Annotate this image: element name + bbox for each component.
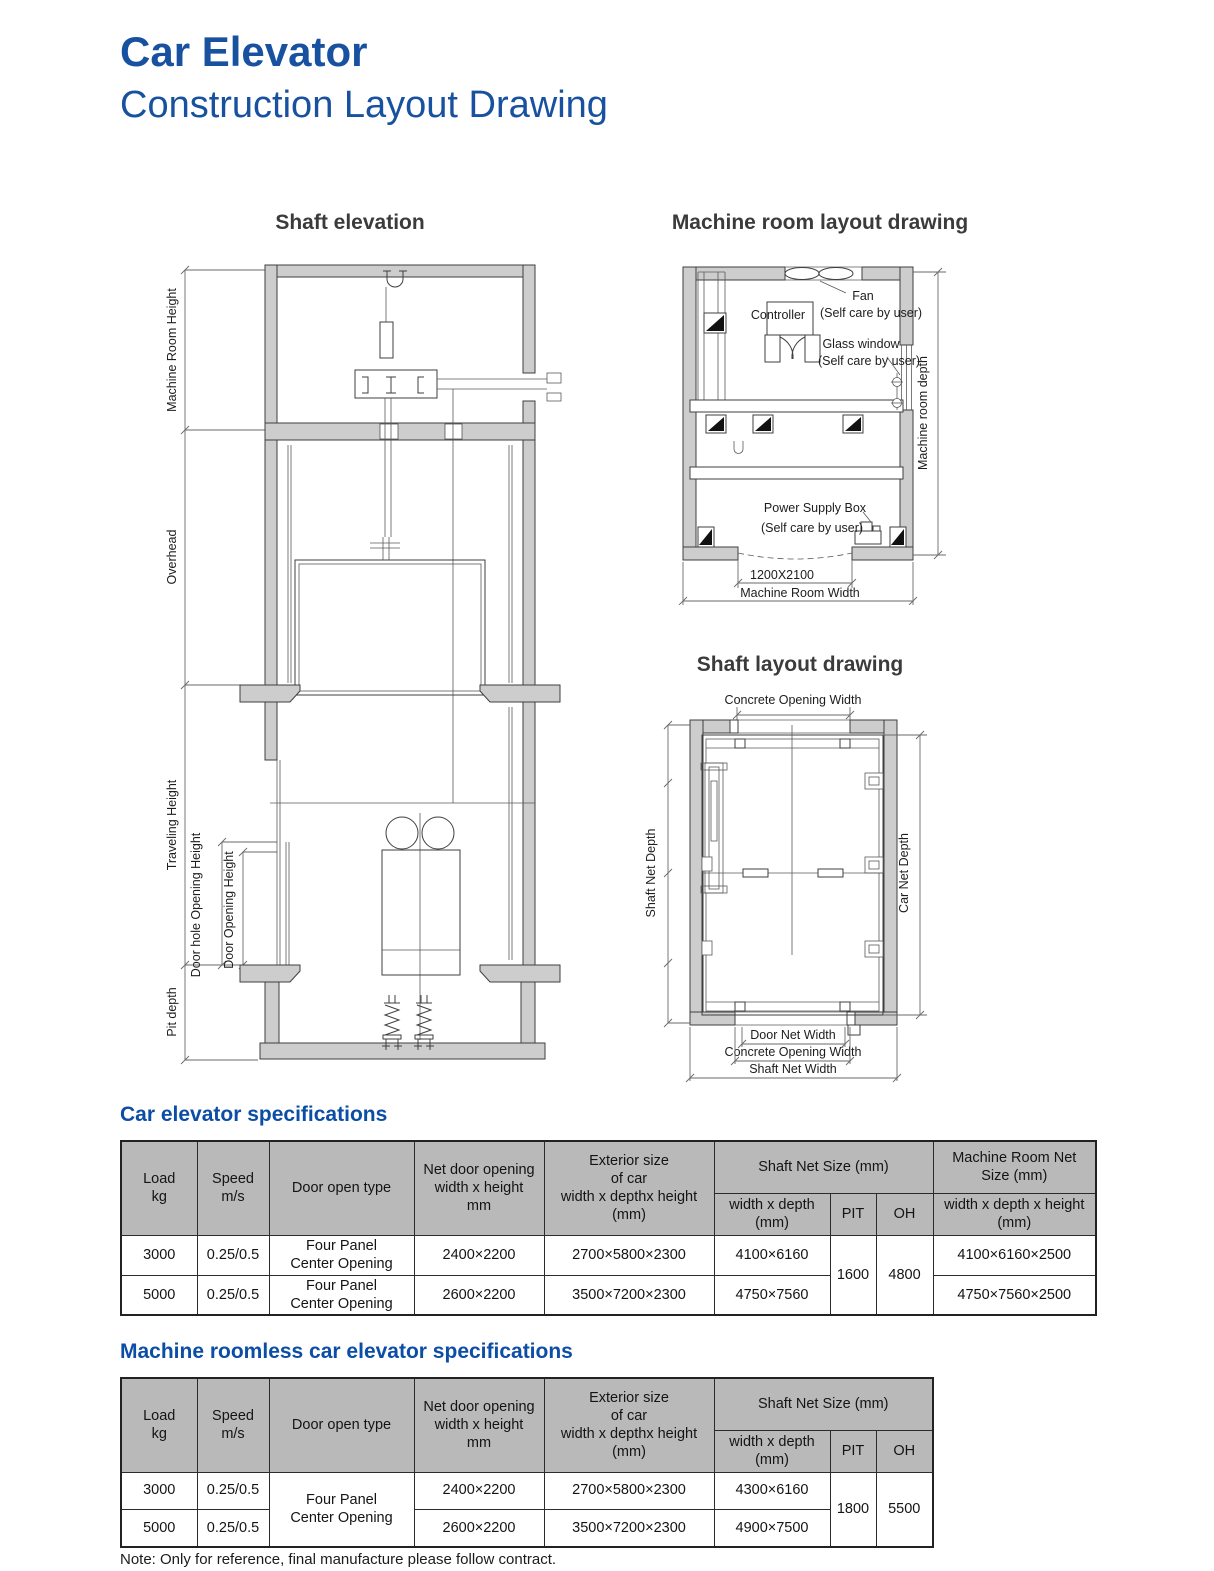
- spec-header-row-1: Load kg Speed m/s Door open type Net doo…: [121, 1141, 1096, 1193]
- dim-concrete-opening-width-bottom: Concrete Opening Width: [725, 1045, 862, 1059]
- cell-pit: 1800: [830, 1472, 876, 1547]
- drawing-sheet: Car Elevator Construction Layout Drawing…: [0, 0, 1214, 1571]
- cell-speed: 0.25/0.5: [197, 1235, 269, 1275]
- col-net-door: Net door opening width x height mm: [414, 1141, 544, 1235]
- dim-shaft-net-width: Shaft Net Width: [749, 1062, 837, 1076]
- buffer-icon: [382, 995, 402, 1050]
- dim-door-net-width: Door Net Width: [750, 1028, 835, 1042]
- page-title: Car Elevator: [120, 24, 608, 80]
- shaft-layout-car: [701, 725, 883, 1015]
- dim-machine-room-height: Machine Room Height: [165, 288, 179, 412]
- cell-pit: 1600: [830, 1235, 876, 1315]
- guide-rail-assembly: [701, 763, 727, 893]
- title-block: Car Elevator Construction Layout Drawing: [120, 24, 608, 130]
- cell-oh: 5500: [876, 1472, 933, 1547]
- cell-speed: 0.25/0.5: [197, 1275, 269, 1315]
- power-supply-note-label: (Self care by user): [761, 521, 863, 535]
- cell-oh: 4800: [876, 1235, 933, 1315]
- col-oh: OH: [876, 1193, 933, 1235]
- cell-net-door: 2600×2200: [414, 1509, 544, 1547]
- cell-shaft-wd: 4750×7560: [714, 1275, 830, 1315]
- col-pit: PIT: [830, 1193, 876, 1235]
- col-exterior: Exterior size of car width x depthx heig…: [544, 1141, 714, 1235]
- cell-exterior: 3500×7200×2300: [544, 1509, 714, 1547]
- elevator-car: [295, 537, 485, 695]
- cell-load: 3000: [121, 1235, 197, 1275]
- dim-car-net-depth: Car Net Depth: [897, 833, 911, 913]
- dim-pit-depth: Pit depth: [165, 987, 179, 1036]
- shaft-elevation-title: Shaft elevation: [275, 211, 424, 234]
- page-subtitle: Construction Layout Drawing: [120, 80, 608, 130]
- col-door-type: Door open type: [269, 1141, 414, 1235]
- spec-table-heading: Car elevator specifications: [120, 1103, 387, 1127]
- anchor-mark: [734, 441, 743, 454]
- col-door-type: Door open type: [269, 1378, 414, 1472]
- cell-mr: 4750×7560×2500: [933, 1275, 1096, 1315]
- footer-note: Note: Only for reference, final manufact…: [120, 1551, 556, 1568]
- cell-shaft-wd: 4300×6160: [714, 1472, 830, 1509]
- col-speed: Speed m/s: [197, 1141, 269, 1235]
- center-lines: [702, 725, 883, 955]
- cell-speed: 0.25/0.5: [197, 1509, 269, 1547]
- table-row: 5000 0.25/0.5 2600×2200 3500×7200×2300 4…: [121, 1509, 933, 1547]
- shaft-net-depth-dim: [664, 721, 690, 1027]
- rail-brackets: [702, 773, 883, 957]
- cell-shaft-wd: 4100×6160: [714, 1235, 830, 1275]
- dim-door-hole-opening-height: Door hole Opening Height: [189, 832, 203, 977]
- cell-door: Four Panel Center Opening: [269, 1275, 414, 1315]
- glass-window-label: Glass window: [822, 337, 900, 351]
- table-row: 3000 0.25/0.5 Four Panel Center Opening …: [121, 1235, 1096, 1275]
- cell-net-door: 2400×2200: [414, 1472, 544, 1509]
- col-load: Load kg: [121, 1378, 197, 1472]
- lower-mechanism: [270, 803, 535, 1040]
- landing-door-lines: [277, 707, 512, 965]
- cell-door: Four Panel Center Opening: [269, 1472, 414, 1547]
- table-row: 3000 0.25/0.5 Four Panel Center Opening …: [121, 1472, 933, 1509]
- roomless-table-heading: Machine roomless car elevator specificat…: [120, 1340, 573, 1364]
- cell-net-door: 2600×2200: [414, 1275, 544, 1315]
- bottom-landing-slab: [240, 965, 560, 982]
- pit: [260, 982, 545, 1059]
- col-shaft-wd: width x depth (mm): [714, 1430, 830, 1472]
- col-machine-room-net-size: Machine Room Net Size (mm): [933, 1141, 1096, 1193]
- dim-overhead: Overhead: [165, 530, 179, 585]
- col-mr-wdh: width x depth x height (mm): [933, 1193, 1096, 1235]
- cell-shaft-wd: 4900×7500: [714, 1509, 830, 1547]
- glass-window-note-label: (Self care by user): [818, 354, 920, 368]
- fan-icon: [785, 268, 853, 280]
- cell-net-door: 2400×2200: [414, 1235, 544, 1275]
- shaft-layout-title: Shaft layout drawing: [697, 653, 904, 676]
- cell-exterior: 2700×5800×2300: [544, 1235, 714, 1275]
- dim-machine-room-depth: Machine room depth: [916, 356, 930, 470]
- machine-room-layout-drawing: Machine room layout drawing: [650, 205, 1210, 605]
- cell-load: 5000: [121, 1509, 197, 1547]
- shaft-elevation-drawing: Shaft elevation Machine Room Height Over…: [140, 205, 590, 1085]
- cell-speed: 0.25/0.5: [197, 1472, 269, 1509]
- door-swing: [738, 553, 852, 559]
- col-exterior: Exterior size of car width x depthx heig…: [544, 1378, 714, 1472]
- col-shaft-wd: width x depth (mm): [714, 1193, 830, 1235]
- machine-room-title: Machine room layout drawing: [672, 211, 968, 234]
- dim-machine-room-width: Machine Room Width: [740, 586, 860, 600]
- controller-label: Controller: [751, 308, 805, 322]
- table-row: 5000 0.25/0.5 Four Panel Center Opening …: [121, 1275, 1096, 1315]
- power-supply-label: Power Supply Box: [764, 501, 867, 515]
- cell-load: 3000: [121, 1472, 197, 1509]
- col-speed: Speed m/s: [197, 1378, 269, 1472]
- roomless-header-row-1: Load kg Speed m/s Door open type Net doo…: [121, 1378, 933, 1430]
- dim-traveling-height: Traveling Height: [165, 779, 179, 870]
- col-load: Load kg: [121, 1141, 197, 1235]
- roomless-table: Load kg Speed m/s Door open type Net doo…: [120, 1377, 934, 1548]
- col-shaft-net-size: Shaft Net Size (mm): [714, 1378, 933, 1430]
- traction-machine-icon: [355, 322, 437, 398]
- col-net-door: Net door opening width x height mm: [414, 1378, 544, 1472]
- machine-beam: [690, 400, 903, 412]
- fan-label: Fan: [852, 289, 874, 303]
- cell-exterior: 3500×7200×2300: [544, 1275, 714, 1315]
- dim-concrete-opening-width-top: Concrete Opening Width: [725, 693, 862, 707]
- col-oh: OH: [876, 1430, 933, 1472]
- cell-load: 5000: [121, 1275, 197, 1315]
- shaft-layout-drawing: Shaft layout drawing Concrete Opening Wi…: [635, 645, 1214, 1085]
- cable-trunking: [698, 272, 725, 400]
- shaft-elevation-dimensions: [181, 266, 380, 1064]
- shaft-layout-top-dim: [733, 707, 854, 723]
- fan-note-label: (Self care by user): [820, 306, 922, 320]
- car-crosshead: [370, 537, 400, 560]
- col-shaft-net-size: Shaft Net Size (mm): [714, 1141, 933, 1193]
- cell-mr: 4100×6160×2500: [933, 1235, 1096, 1275]
- buffer-icon: [414, 995, 434, 1050]
- col-pit: PIT: [830, 1430, 876, 1472]
- dim-door-opening-height: Door Opening Height: [222, 851, 236, 969]
- machine-beam: [690, 467, 903, 479]
- elevation-machine-room: [265, 265, 561, 803]
- dim-shaft-net-depth: Shaft Net Depth: [644, 828, 658, 917]
- cell-exterior: 2700×5800×2300: [544, 1472, 714, 1509]
- dim-door-size: 1200X2100: [750, 568, 814, 582]
- spec-table: Load kg Speed m/s Door open type Net doo…: [120, 1140, 1097, 1316]
- mid-landing-slab: [240, 685, 560, 702]
- cell-door: Four Panel Center Opening: [269, 1235, 414, 1275]
